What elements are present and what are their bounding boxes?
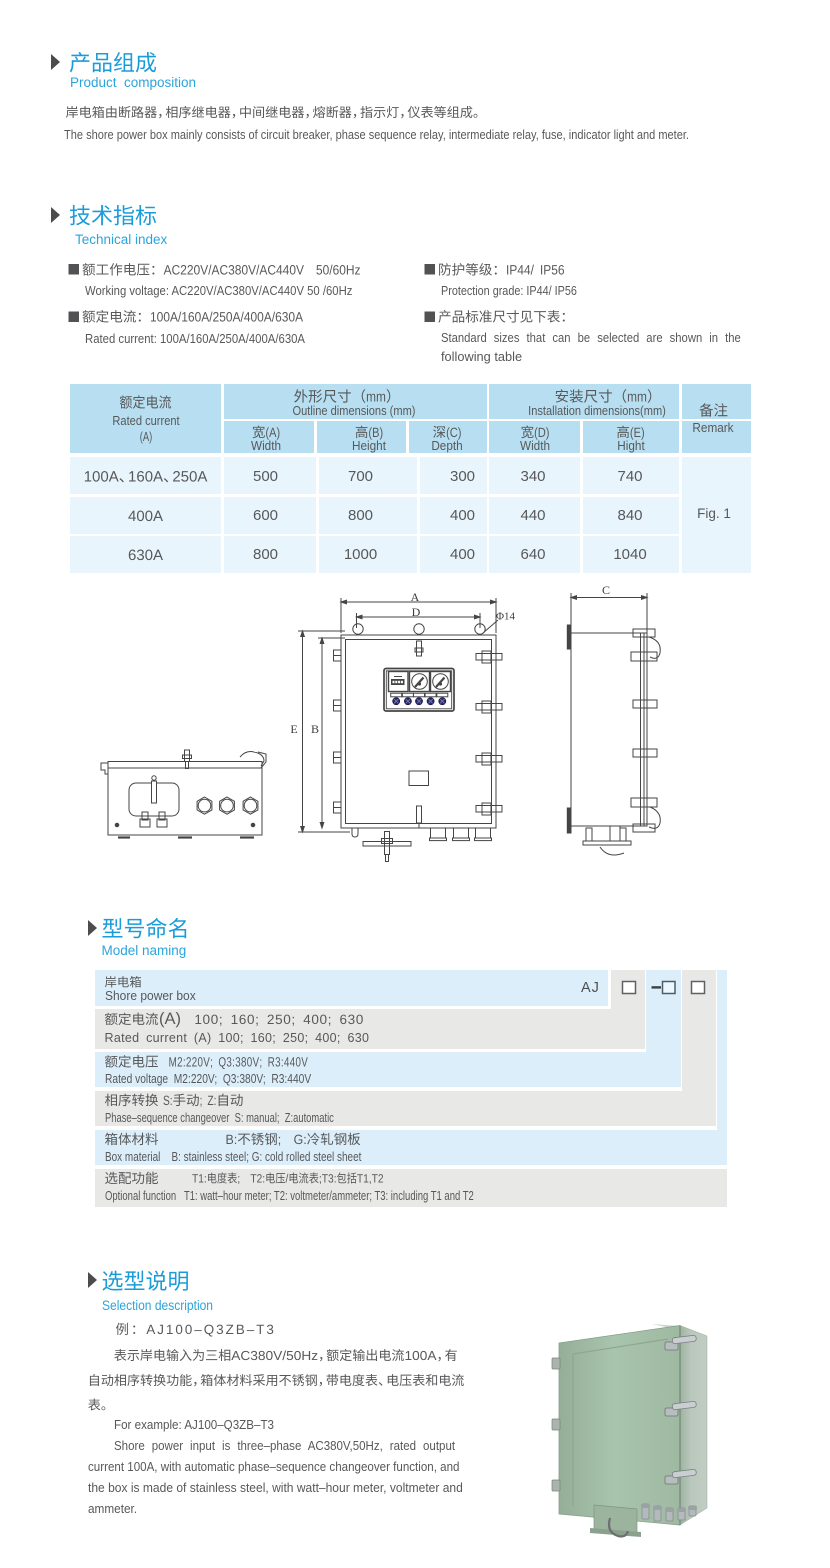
svg-text:C: C bbox=[602, 583, 610, 597]
svg-text:E: E bbox=[290, 722, 297, 736]
svg-text:B: B bbox=[311, 722, 319, 736]
svg-text:Φ14: Φ14 bbox=[496, 611, 516, 623]
svg-text:A: A bbox=[411, 590, 420, 604]
svg-text:D: D bbox=[412, 605, 421, 619]
